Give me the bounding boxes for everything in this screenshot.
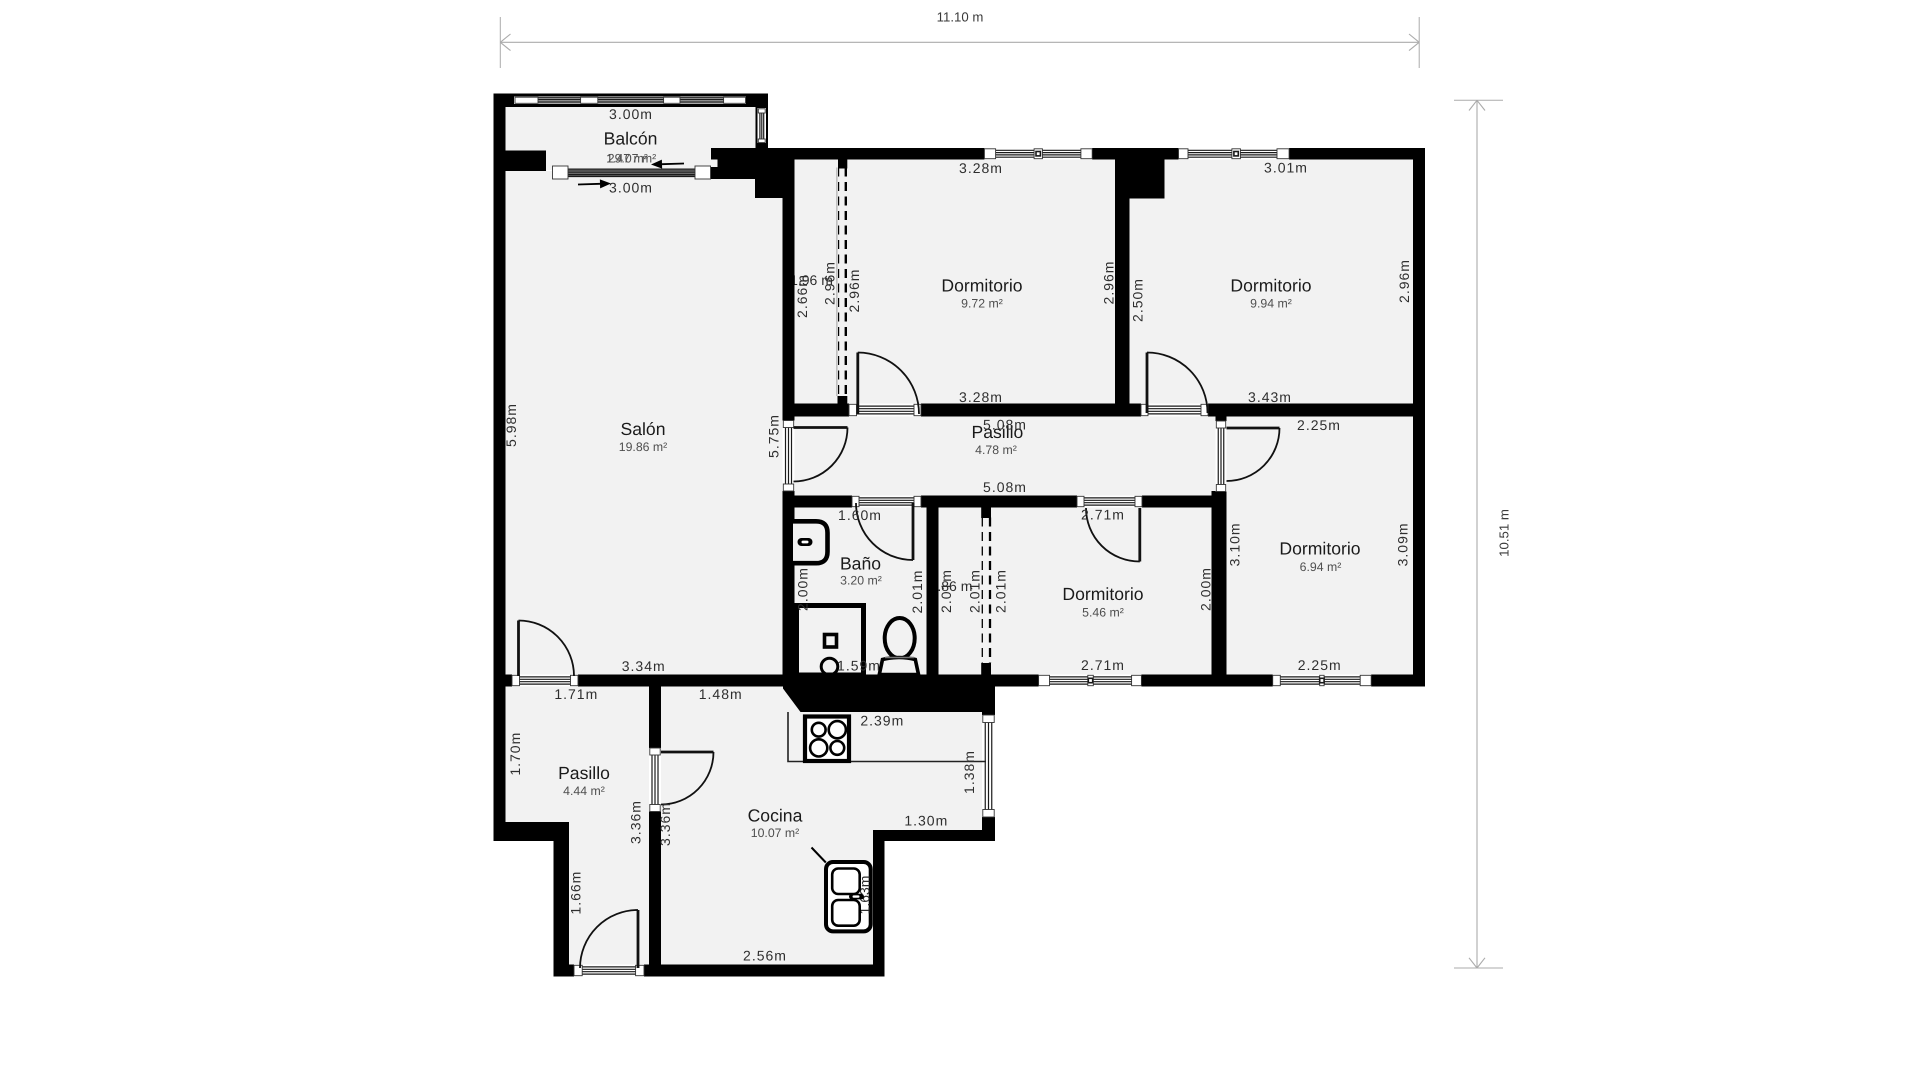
svg-text:2.56m: 2.56m xyxy=(743,947,787,963)
svg-text:2.96m: 2.96m xyxy=(1101,261,1117,305)
svg-text:1.70m: 1.70m xyxy=(507,732,523,776)
svg-text:2.25m: 2.25m xyxy=(1297,417,1341,433)
svg-text:5.98m: 5.98m xyxy=(503,403,519,447)
svg-text:2.01m: 2.01m xyxy=(909,570,925,614)
svg-text:3.00m: 3.00m xyxy=(609,106,653,122)
svg-text:2.71m: 2.71m xyxy=(1081,657,1125,673)
svg-text:3.00m: 3.00m xyxy=(609,179,653,195)
svg-text:2.01m: 2.01m xyxy=(993,569,1009,613)
svg-text:Salón: Salón xyxy=(620,419,665,439)
svg-text:3.43m: 3.43m xyxy=(1248,389,1292,405)
svg-text:5.75m: 5.75m xyxy=(766,414,782,458)
svg-text:1.66m: 1.66m xyxy=(568,871,584,915)
svg-text:2.66m: 2.66m xyxy=(794,274,810,318)
svg-text:2.00m: 2.00m xyxy=(1197,567,1213,611)
svg-text:Dormitorio: Dormitorio xyxy=(1230,275,1311,295)
svg-text:11.10 m: 11.10 m xyxy=(937,9,984,24)
svg-text:2.25m: 2.25m xyxy=(1298,657,1342,673)
svg-text:4.44 m²: 4.44 m² xyxy=(563,784,605,798)
svg-text:3.10m: 3.10m xyxy=(1226,522,1242,566)
svg-text:1.30m: 1.30m xyxy=(904,812,948,828)
svg-text:5.08m: 5.08m xyxy=(983,479,1027,495)
svg-text:1.71m: 1.71m xyxy=(554,686,598,702)
svg-text:2.01m: 2.01m xyxy=(967,569,983,613)
svg-text:3.36m: 3.36m xyxy=(657,802,673,846)
svg-text:10.51 m: 10.51 m xyxy=(1497,509,1512,557)
svg-text:6.94 m²: 6.94 m² xyxy=(1300,560,1342,574)
svg-text:1.60m: 1.60m xyxy=(838,507,882,523)
svg-text:2.50m: 2.50m xyxy=(1130,278,1146,322)
svg-text:5.08m: 5.08m xyxy=(983,416,1027,432)
svg-text:Dormitorio: Dormitorio xyxy=(1279,538,1360,558)
svg-text:1.38m: 1.38m xyxy=(961,750,977,794)
svg-text:Dormitorio: Dormitorio xyxy=(941,275,1022,295)
svg-text:2.96m: 2.96m xyxy=(846,269,862,313)
svg-text:Pasillo: Pasillo xyxy=(558,763,610,783)
svg-text:19.86 m²: 19.86 m² xyxy=(619,440,668,454)
svg-text:10.07 m²: 10.07 m² xyxy=(751,826,800,840)
svg-text:Cocina: Cocina xyxy=(748,805,803,825)
svg-text:2.96m: 2.96m xyxy=(822,261,838,305)
svg-text:2.01m: 2.01m xyxy=(938,569,954,613)
svg-text:1.48m: 1.48m xyxy=(699,686,743,702)
svg-text:3.28m: 3.28m xyxy=(959,389,1003,405)
svg-text:5.46 m²: 5.46 m² xyxy=(1082,605,1124,619)
svg-text:1.59m: 1.59m xyxy=(837,657,881,673)
svg-text:3.09m: 3.09m xyxy=(1395,522,1411,566)
svg-text:2.96m: 2.96m xyxy=(1396,259,1412,303)
svg-text:2.71m: 2.71m xyxy=(1081,506,1125,522)
svg-text:3.28m: 3.28m xyxy=(959,160,1003,176)
svg-text:2.39m: 2.39m xyxy=(860,712,904,728)
svg-text:9.94 m²: 9.94 m² xyxy=(1250,296,1292,310)
svg-text:3.01m: 3.01m xyxy=(1264,159,1308,175)
svg-text:Dormitorio: Dormitorio xyxy=(1062,584,1143,604)
svg-text:4.78 m²: 4.78 m² xyxy=(975,443,1017,457)
svg-text:Baño: Baño xyxy=(840,553,881,573)
svg-text:2.00m: 2.00m xyxy=(795,567,811,611)
svg-text:9.72 m²: 9.72 m² xyxy=(961,296,1003,310)
svg-text:3.20 m²: 3.20 m² xyxy=(840,573,882,587)
svg-text:Balcón: Balcón xyxy=(604,128,658,148)
svg-text:1.47 m²: 1.47 m² xyxy=(606,151,648,165)
svg-text:3.36m: 3.36m xyxy=(628,800,644,844)
svg-text:3.34m: 3.34m xyxy=(622,658,666,674)
